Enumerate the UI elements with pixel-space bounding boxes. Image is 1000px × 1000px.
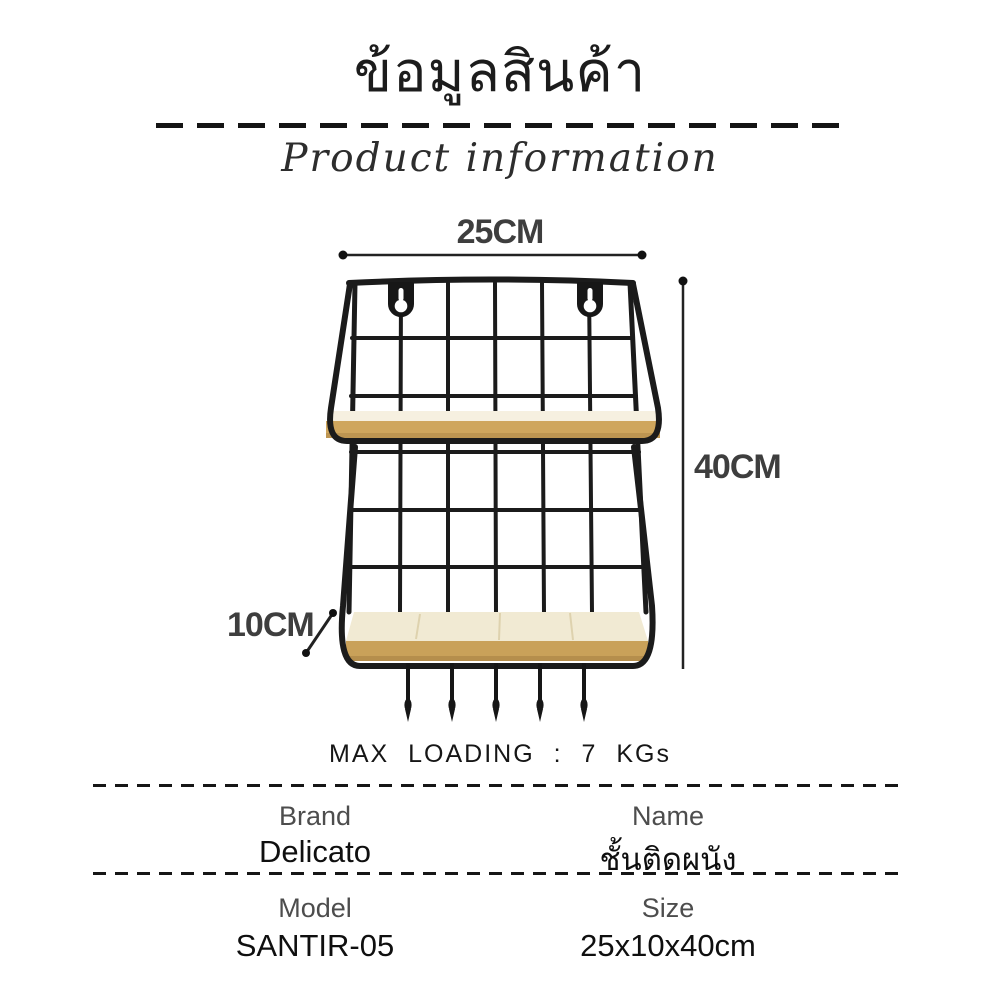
upper-shelf-board (326, 411, 660, 438)
spec-label-size: Size (468, 893, 868, 924)
hook-icon (404, 663, 411, 722)
hook-icon (536, 663, 543, 722)
lower-shelf-board (346, 612, 648, 661)
divider-spec-1 (93, 784, 907, 787)
wire-grid (349, 280, 646, 614)
spec-value-brand: Delicato (115, 834, 515, 870)
keyhole-hanger-icon (578, 283, 602, 316)
max-loading-text: MAX LOADING : 7 KGs (0, 740, 1000, 769)
hook-icon (492, 663, 499, 722)
product-information-page: ข้อมูลสินค้า Product information 25CM 40… (0, 0, 1000, 1000)
width-dimension-line (339, 251, 647, 260)
divider-spec-2 (93, 872, 907, 875)
shelf-illustration (0, 0, 1000, 780)
hook-icon (580, 663, 587, 722)
spec-label-model: Model (115, 893, 515, 924)
keyhole-hanger-icon (389, 283, 413, 316)
spec-label-name: Name (468, 801, 868, 832)
hooks-row (404, 663, 587, 722)
spec-value-model: SANTIR-05 (115, 928, 515, 964)
hook-icon (448, 663, 455, 722)
spec-label-brand: Brand (115, 801, 515, 832)
spec-value-name: ชั้นติดผนัง (468, 834, 868, 884)
depth-dimension-line (302, 609, 337, 657)
spec-value-size: 25x10x40cm (468, 928, 868, 964)
height-dimension-line (679, 277, 688, 670)
